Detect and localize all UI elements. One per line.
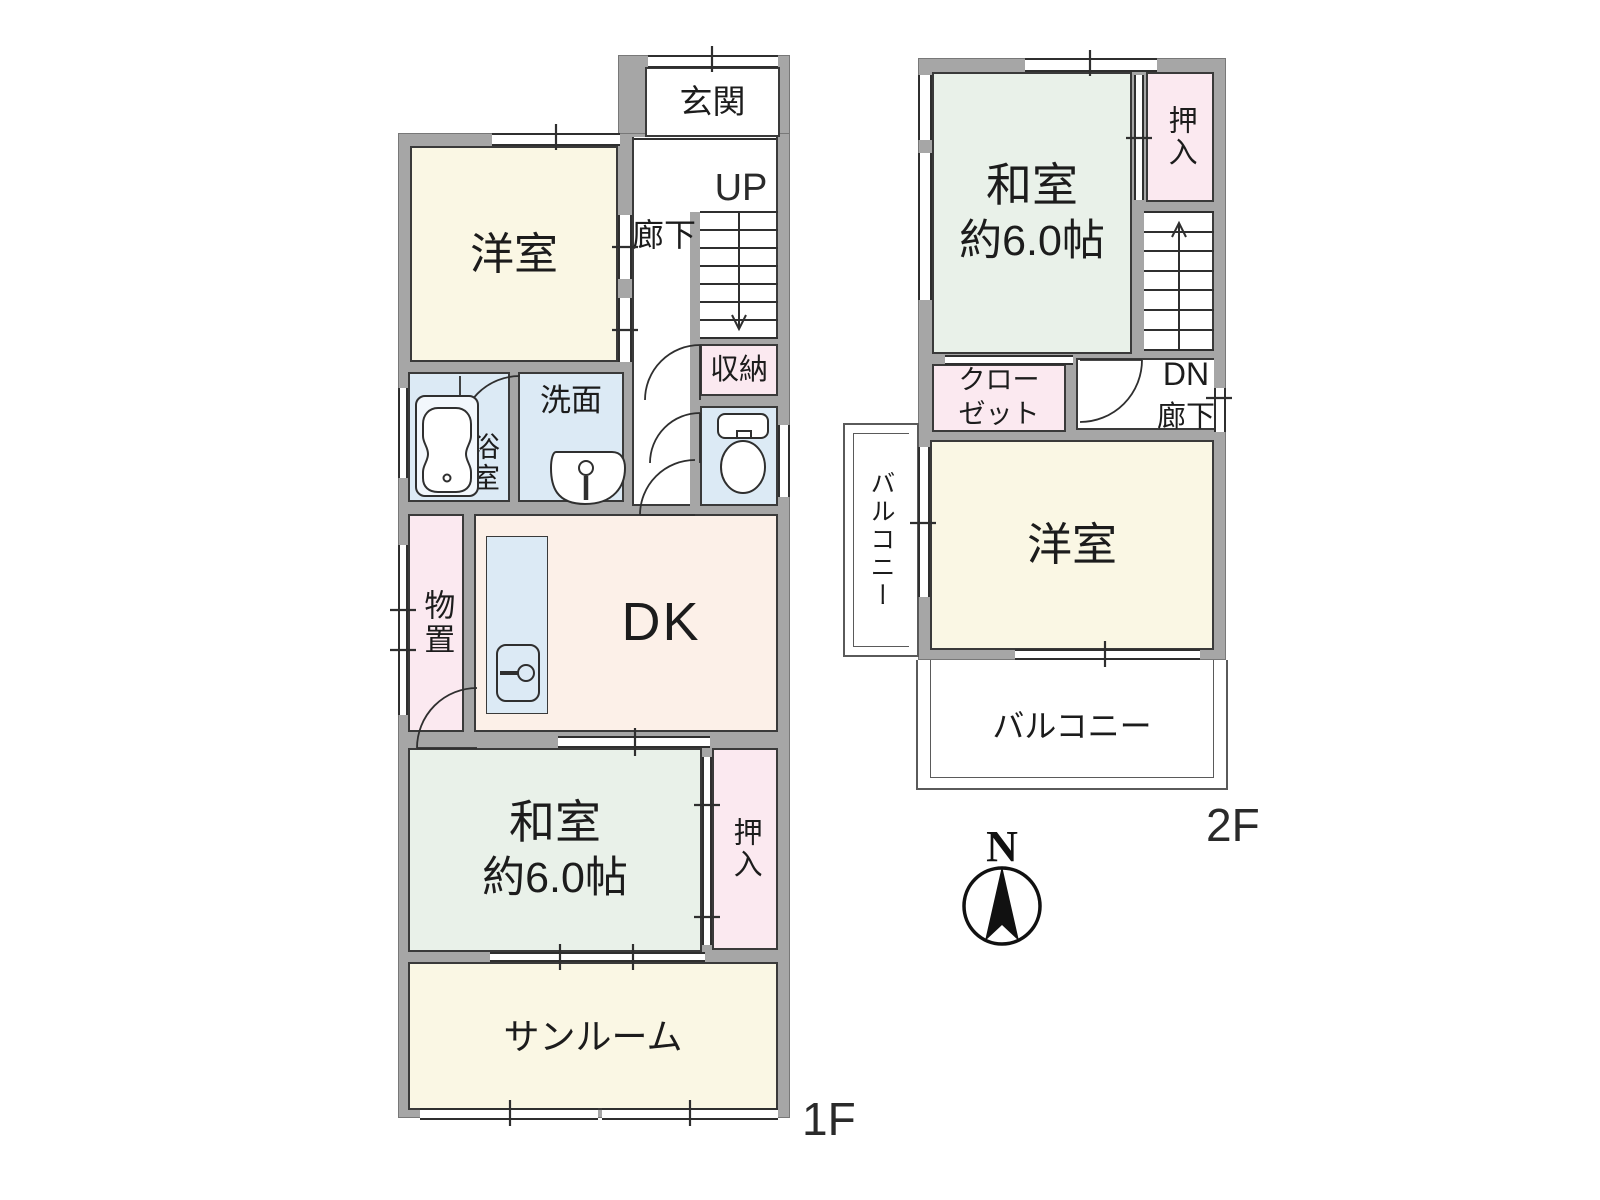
dk-label: DK bbox=[621, 589, 700, 657]
room-shunou: 収納 bbox=[700, 344, 778, 396]
yokushitsu-label: 浴室 bbox=[464, 432, 504, 494]
hall-corridor-1f bbox=[632, 212, 690, 506]
slide-dk-washitsu bbox=[558, 736, 710, 748]
oshiire-1f-label: 押入 bbox=[727, 817, 763, 881]
window-dn-right bbox=[1214, 388, 1226, 432]
room-washitsu-2f: 和室 約6.0帖 bbox=[932, 72, 1132, 354]
compass-needle bbox=[985, 866, 1019, 941]
room-washitsu-1f: 和室 約6.0帖 bbox=[408, 748, 702, 952]
monooki-label: 物置 bbox=[417, 589, 456, 657]
room-senmen: 洗面 bbox=[518, 372, 624, 502]
floor-label-1f: 1F bbox=[802, 1092, 856, 1146]
balcony-left-label: バルコニー bbox=[863, 470, 899, 610]
slide-oshiire-2f bbox=[1134, 75, 1144, 200]
window-sunroom-bottom-1 bbox=[420, 1108, 598, 1120]
window-youshitsu-2f-left bbox=[918, 447, 930, 597]
room-youshitsu-1f: 洋室 bbox=[410, 146, 618, 362]
room-sunroom: サンルーム bbox=[408, 962, 778, 1110]
window-youshitsu-1f-top bbox=[492, 133, 620, 146]
balcony-left: バルコニー bbox=[843, 423, 919, 657]
stairs-up-label: UP bbox=[715, 167, 768, 210]
window-entrance-door bbox=[648, 55, 778, 68]
slide-closet-2f-top bbox=[945, 355, 1073, 365]
plan-linework: N bbox=[0, 0, 1600, 1200]
genkan-label: 玄関 bbox=[680, 81, 746, 122]
compass-circle bbox=[964, 868, 1040, 944]
washitsu-1f-size: 約6.0帖 bbox=[482, 852, 628, 906]
youshitsu-2f-label: 洋室 bbox=[1027, 517, 1117, 573]
oshiire-2f-label: 押入 bbox=[1162, 105, 1198, 169]
washitsu-1f-name: 和室 bbox=[509, 794, 601, 852]
wall-stairs-left-1f bbox=[690, 212, 700, 506]
room-monooki: 物置 bbox=[408, 514, 464, 732]
compass: N bbox=[964, 822, 1040, 944]
room-toilet bbox=[700, 406, 778, 506]
window-yokushitsu-left bbox=[398, 388, 408, 478]
stairs-area-2f bbox=[1144, 212, 1214, 350]
hallway-1f-label-box: 廊下 bbox=[626, 210, 702, 256]
washitsu-2f-name: 和室 bbox=[986, 157, 1078, 215]
window-washitsu-2f-top bbox=[1025, 58, 1157, 72]
slide-washitsu-sunroom bbox=[490, 952, 705, 962]
slide-youshitsu-hall-lower bbox=[618, 298, 632, 362]
shunou-label: 収納 bbox=[710, 352, 768, 388]
youshitsu-1f-label: 洋室 bbox=[470, 227, 558, 282]
room-oshiire-2f: 押入 bbox=[1146, 72, 1214, 202]
closet-line1: クロー bbox=[959, 364, 1040, 398]
closet-line2: ゼット bbox=[959, 398, 1040, 432]
sunroom-label: サンルーム bbox=[504, 1014, 683, 1059]
kitchen-counter bbox=[486, 536, 548, 714]
balcony-bottom: バルコニー bbox=[916, 660, 1228, 790]
stairs-area-1f bbox=[700, 212, 778, 338]
room-youshitsu-2f: 洋室 bbox=[930, 440, 1214, 650]
window-monooki-left bbox=[398, 545, 408, 715]
window-washitsu-2f-left-1 bbox=[918, 75, 932, 140]
senmen-label: 洗面 bbox=[540, 382, 602, 421]
washitsu-2f-size: 約6.0帖 bbox=[959, 215, 1105, 269]
compass-north-label: N bbox=[986, 822, 1018, 871]
room-closet-2f: クロー ゼット bbox=[932, 364, 1066, 432]
room-oshiire-1f: 押入 bbox=[712, 748, 778, 950]
floor-label-2f: 2F bbox=[1206, 798, 1260, 852]
hallway-2f-label: 廊下 bbox=[1157, 393, 1215, 435]
slide-youshitsu-hall-upper bbox=[618, 215, 632, 279]
floorplan-canvas: 玄関 収納 洋室 浴室 洗面 物置 DK 和室 約6.0帖 押入 サンルーム 廊… bbox=[0, 0, 1600, 1200]
hall-dn-label-box: DN 廊下 bbox=[1148, 362, 1224, 428]
window-toilet-right bbox=[778, 425, 790, 497]
hallway-1f-label: 廊下 bbox=[632, 210, 696, 256]
stairs-dn-label: DN bbox=[1163, 356, 1209, 393]
stairs-up-label-box: UP bbox=[704, 166, 778, 210]
window-youshitsu-2f-bottom bbox=[1015, 649, 1200, 660]
balcony-bottom-label: バルコニー bbox=[992, 701, 1151, 747]
room-genkan: 玄関 bbox=[645, 67, 780, 137]
window-washitsu-2f-left-2 bbox=[918, 153, 932, 300]
window-sunroom-bottom-2 bbox=[602, 1108, 778, 1120]
slide-oshiire-1f bbox=[702, 757, 712, 945]
